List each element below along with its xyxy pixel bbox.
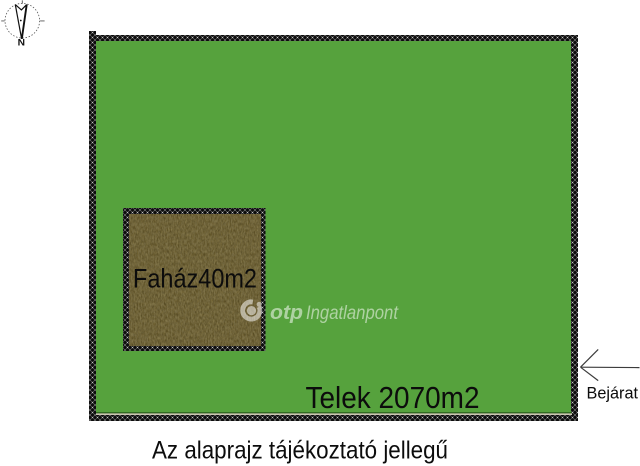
svg-text:Bejárat: Bejárat (587, 385, 639, 403)
svg-text:Ingatlanpont: Ingatlanpont (306, 302, 399, 324)
svg-text:Az alaprajz tájékoztató jelleg: Az alaprajz tájékoztató jellegű (152, 437, 448, 465)
svg-text:otp: otp (270, 302, 303, 324)
svg-text:Telek 2070m2: Telek 2070m2 (306, 381, 480, 415)
svg-text:Faház40m2: Faház40m2 (133, 264, 257, 294)
svg-text:N: N (18, 37, 25, 47)
